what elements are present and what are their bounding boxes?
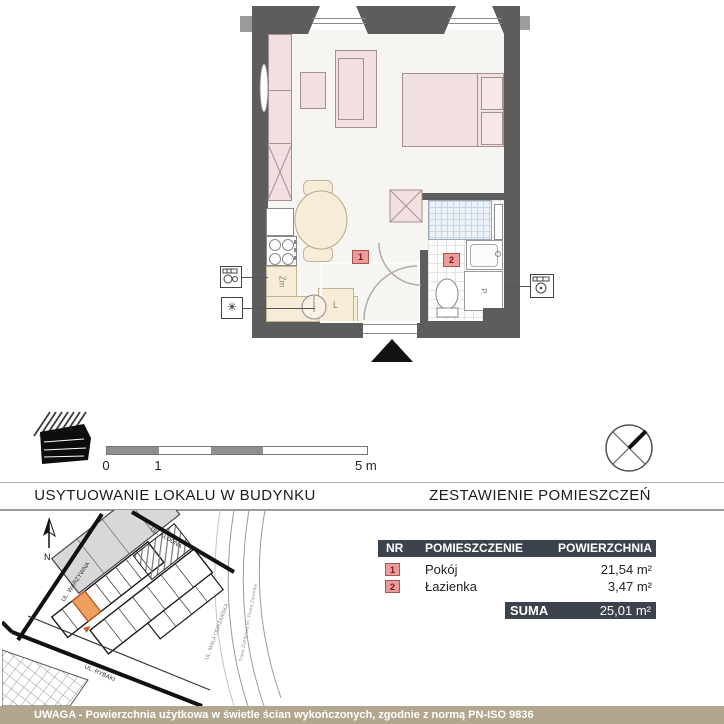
bed-edge bbox=[477, 73, 478, 147]
radiator bbox=[494, 204, 503, 240]
footer-bar: UWAGA - Powierzchnia użytkowa w świetle … bbox=[0, 706, 724, 724]
window-reveal bbox=[356, 6, 368, 34]
table-row: 1 Pokój 21,54 m² bbox=[378, 562, 656, 578]
coffee-table bbox=[300, 72, 326, 109]
compass-icon bbox=[602, 421, 656, 475]
stove bbox=[266, 236, 297, 266]
scale-segment bbox=[211, 447, 263, 454]
chair bbox=[303, 246, 333, 262]
section-title-left: USYTUOWANIE LOKALU W BUDYNKU bbox=[20, 487, 330, 504]
wall-top-middle bbox=[368, 6, 444, 34]
rooms-table: NR POMIESZCZENIE POWIERZCHNIA 1 Pokój 21… bbox=[378, 540, 656, 620]
bathroom-wall-top bbox=[420, 193, 504, 200]
table-row: 2 Łazienka 3,47 m² bbox=[378, 579, 656, 595]
suma-label: SUMA bbox=[510, 602, 548, 619]
meter-line bbox=[243, 308, 315, 309]
scale-bar bbox=[106, 446, 368, 455]
chair bbox=[303, 180, 333, 196]
window-1 bbox=[312, 23, 366, 24]
window-2 bbox=[448, 18, 502, 19]
table-header-row: NR POMIESZCZENIE POWIERZCHNIA bbox=[378, 540, 656, 557]
header-area: POWIERZCHNIA bbox=[558, 540, 652, 557]
scale-tick-1: 1 bbox=[154, 458, 161, 473]
room-2-badge: 2 bbox=[443, 253, 460, 267]
row-name: Pokój bbox=[425, 562, 458, 577]
meter-line bbox=[242, 277, 268, 278]
washing-machine-label: P. bbox=[479, 288, 488, 295]
site-plan: N UL. KŁODNA UL. WARZYWNA UL. RYBAKI UL.… bbox=[2, 510, 282, 706]
wall-pier bbox=[483, 308, 504, 321]
window-reveal bbox=[492, 6, 504, 34]
row-area: 21,54 m² bbox=[601, 562, 652, 577]
dishwasher-label: Zm bbox=[277, 276, 286, 288]
scale-tick-5m: 5 m bbox=[355, 458, 377, 473]
snowflake-icon: ✳ bbox=[221, 297, 243, 319]
dishwasher: Zm bbox=[266, 266, 297, 297]
row-name: Łazienka bbox=[425, 579, 477, 594]
street-trasa-zamkowa: Trasa Zamkowa im. Piotra Zaremby bbox=[238, 583, 259, 662]
entrance-threshold bbox=[363, 333, 417, 334]
header-nr: NR bbox=[386, 540, 403, 557]
window-1 bbox=[312, 18, 366, 19]
suma-value: 25,01 m² bbox=[600, 602, 651, 619]
bathroom-wall-left bbox=[420, 250, 428, 321]
wall-bottom-left bbox=[252, 321, 363, 338]
entrance-threshold bbox=[363, 324, 417, 325]
wardrobe-divider bbox=[268, 90, 292, 91]
north-label: N bbox=[44, 552, 51, 562]
sofa-seat bbox=[338, 58, 364, 120]
window-2 bbox=[448, 23, 502, 24]
meter-line bbox=[506, 286, 530, 287]
vestibule-marking bbox=[320, 262, 420, 323]
bed-pillow bbox=[481, 112, 503, 145]
kitchen-cabinet bbox=[266, 208, 294, 236]
window-reveal bbox=[308, 6, 320, 34]
shower bbox=[428, 200, 492, 240]
entrance-arrow bbox=[371, 339, 413, 362]
wall-stub bbox=[240, 16, 252, 32]
wall-right bbox=[504, 28, 520, 338]
scale-segment bbox=[107, 447, 159, 454]
washbasin-bowl bbox=[470, 244, 498, 267]
header-name: POMIESZCZENIE bbox=[425, 540, 523, 557]
electric-meter-icon bbox=[220, 266, 242, 288]
washing-machine: P. bbox=[464, 271, 503, 311]
window-reveal bbox=[444, 6, 456, 34]
row-badge: 1 bbox=[385, 563, 400, 576]
row-badge: 2 bbox=[385, 580, 400, 593]
wardrobe-divider bbox=[268, 143, 292, 144]
floor-plan: P. Zm L 1 2 bbox=[0, 0, 724, 370]
scale-tick-0: 0 bbox=[102, 458, 109, 473]
water-meter-icon bbox=[530, 274, 554, 298]
section-title-right: ZESTAWIENIE POMIESZCZEŃ bbox=[395, 487, 685, 504]
north-arrow: N bbox=[43, 518, 55, 562]
suma-bar: SUMA 25,01 m² bbox=[505, 602, 656, 619]
bed-pillow bbox=[481, 77, 503, 110]
building-icon bbox=[28, 408, 100, 468]
footer-note: UWAGA - Powierzchnia użytkowa w świetle … bbox=[34, 709, 534, 721]
room-1-badge: 1 bbox=[352, 250, 369, 264]
wall-stub bbox=[520, 16, 530, 30]
row-area: 3,47 m² bbox=[608, 579, 652, 594]
street-mala-odrzanska: UL. MAŁA ODRZAŃSKA bbox=[203, 602, 230, 661]
wardrobe bbox=[268, 34, 292, 201]
divider-line bbox=[0, 482, 724, 483]
wall-bottom-right bbox=[417, 321, 520, 338]
